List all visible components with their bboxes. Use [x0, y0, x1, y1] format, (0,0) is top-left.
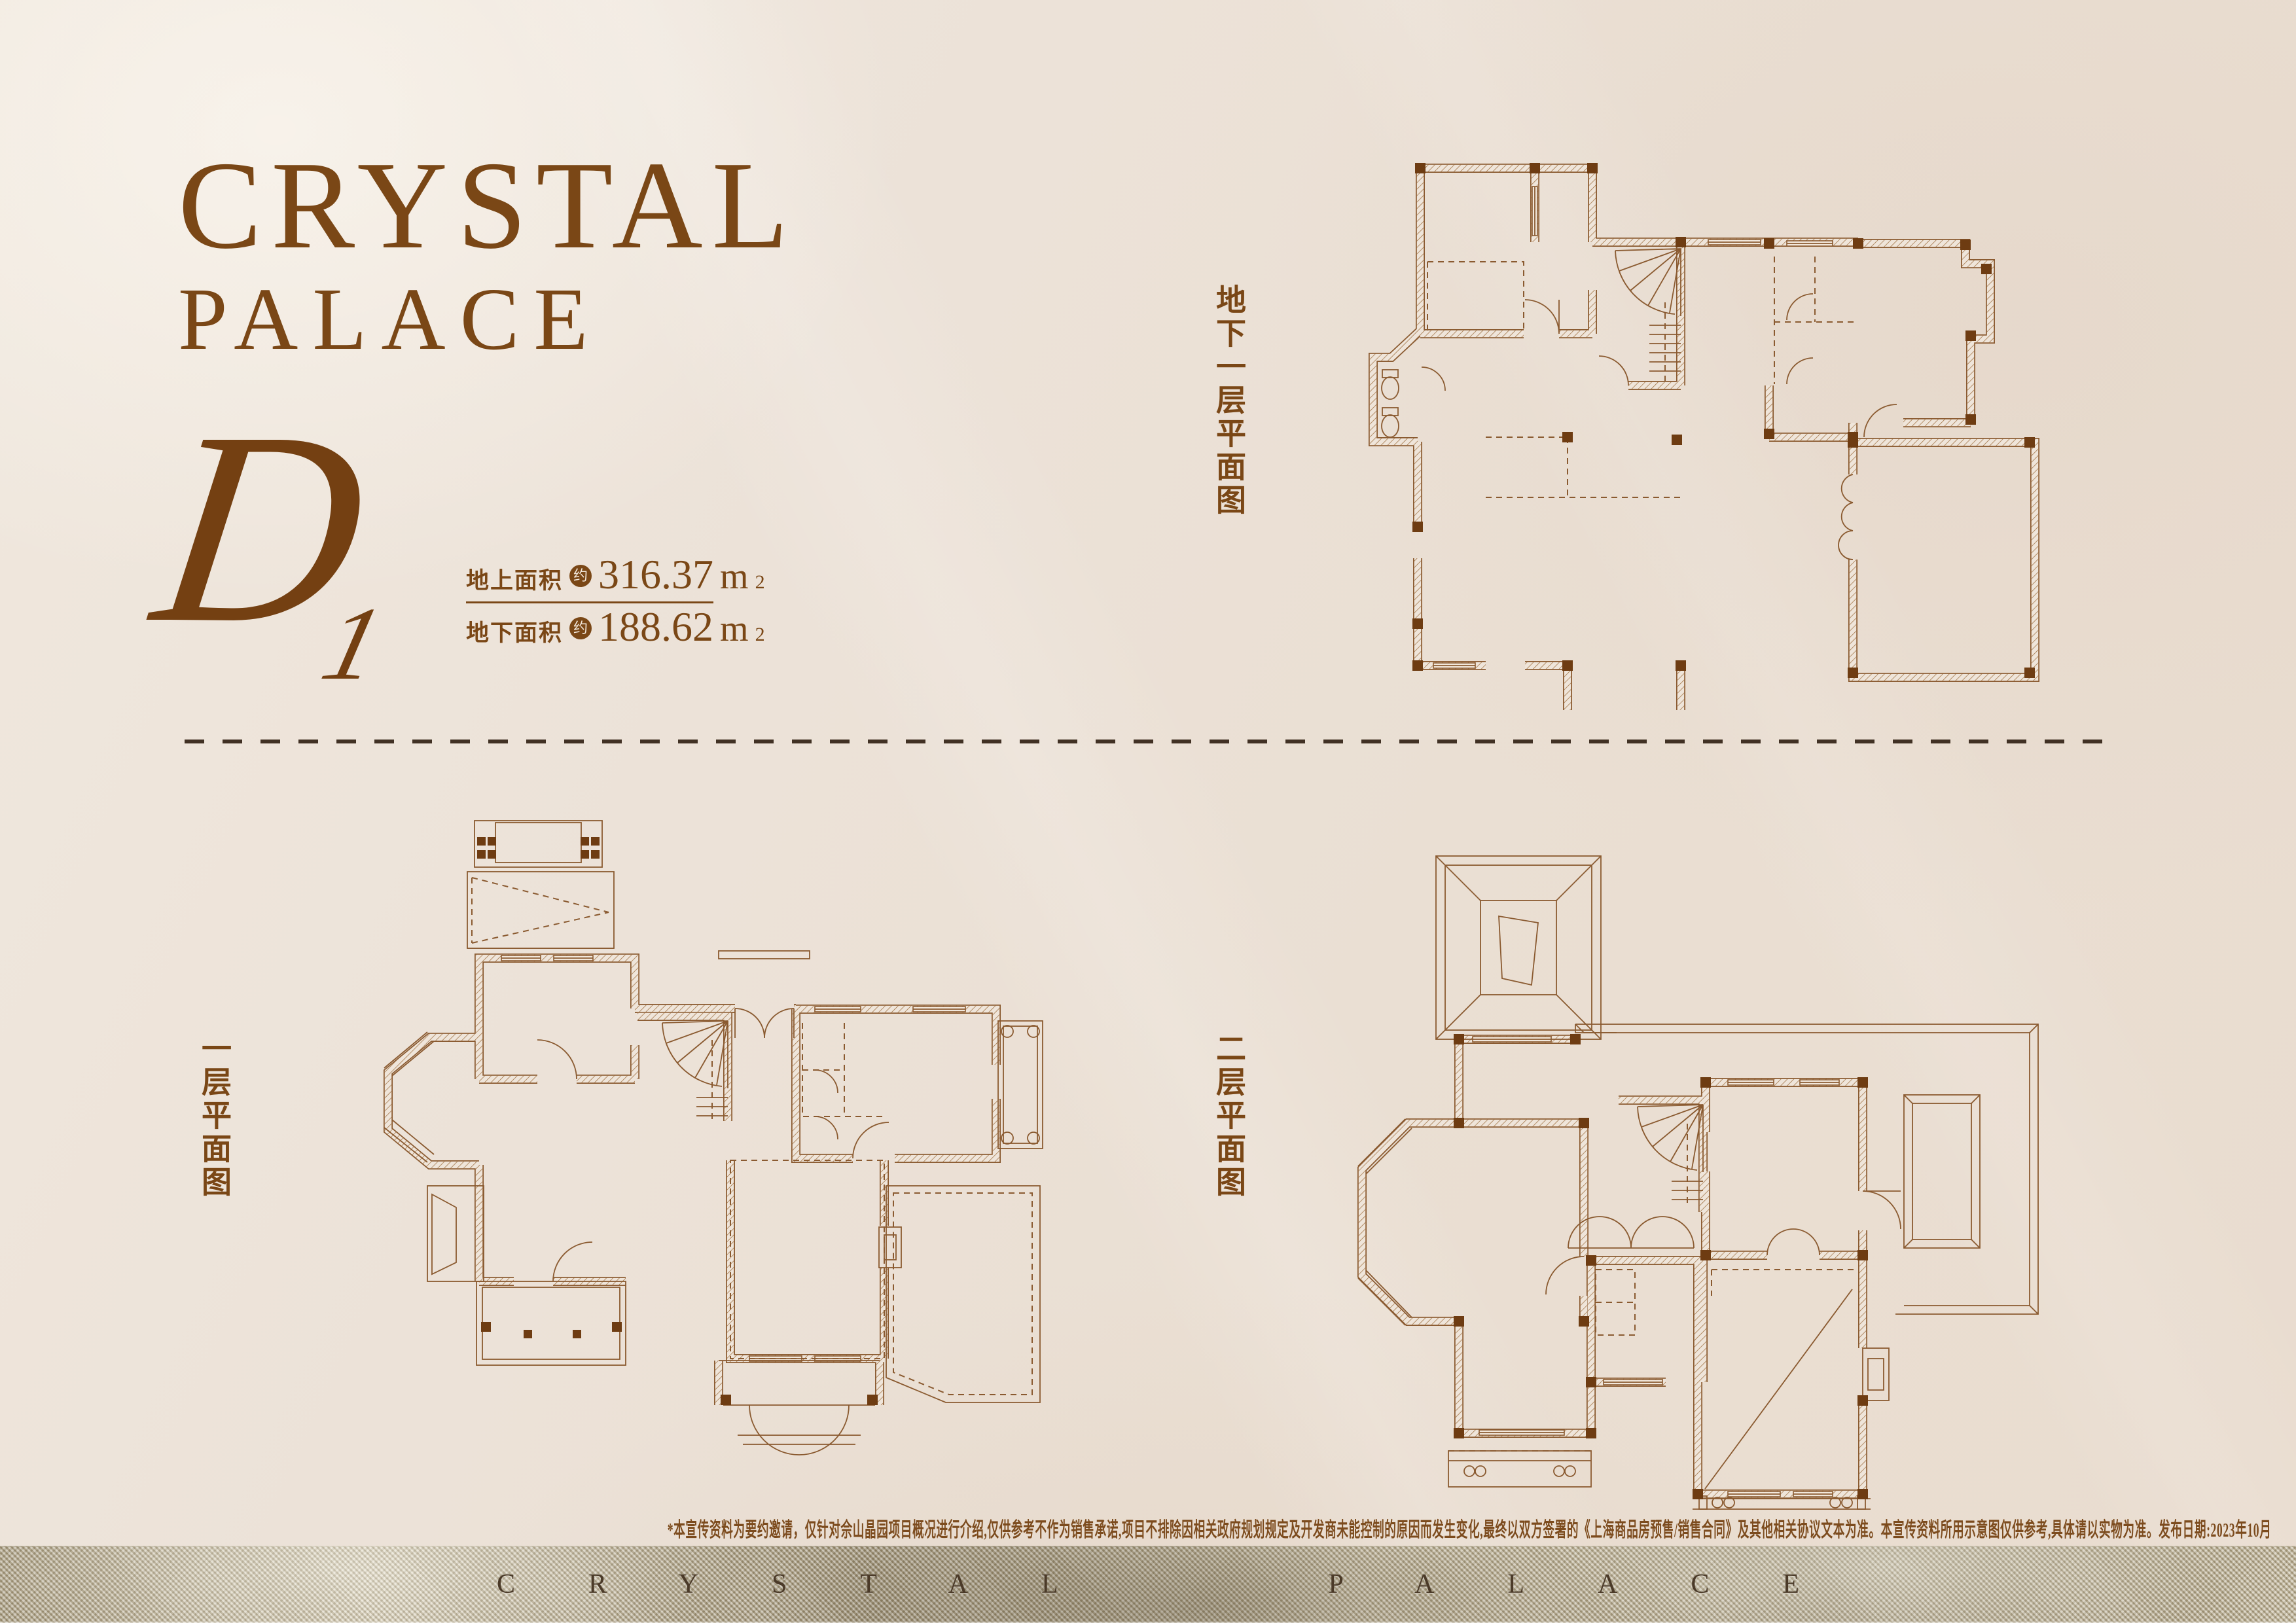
dashed-section-divider [185, 740, 2115, 743]
page-title: CRYSTAL [178, 143, 798, 268]
area-value: 316.37 [598, 554, 713, 596]
brochure-page: CRYSTAL PALACE D1 地上面积 约 316.37m2 地下面积 约… [0, 0, 2296, 1623]
label-basement-plan: 地下一层平面图 [1213, 284, 1244, 518]
first-floor-plan-drawing [357, 815, 1083, 1508]
label-second-floor-plan: 二层平面图 [1213, 1033, 1244, 1200]
approx-badge-icon: 约 [569, 617, 592, 639]
label-first-floor-plan: 一层平面图 [199, 1033, 229, 1200]
page-subtitle: PALACE [178, 275, 602, 364]
second-floor-plan-drawing [1335, 838, 2134, 1512]
basement-floor-plan-drawing [1368, 134, 2101, 710]
footer-metallic-bar: CRYSTAL PALACE [0, 1546, 2296, 1623]
area-label: 地上面积 [466, 562, 563, 596]
area-summary: 地上面积 约 316.37m2 地下面积 约 188.62m2 [466, 554, 728, 650]
area-label: 地下面积 [466, 615, 563, 648]
legal-disclaimer: *本宣传资料为要约邀请，仅针对佘山晶园项目概况进行介绍,仅供参考不作为销售承诺,… [667, 1513, 2271, 1543]
approx-badge-icon: 约 [569, 565, 592, 587]
footer-brand-text: CRYSTAL PALACE [0, 1546, 2296, 1623]
area-above-ground: 地上面积 约 316.37m2 [466, 554, 728, 597]
unit-code: D1 [162, 390, 379, 696]
area-below-ground: 地下面积 约 188.62m2 [466, 606, 728, 650]
area-unit: m [720, 556, 749, 597]
area-value: 188.62 [598, 606, 713, 648]
area-unit: m [720, 608, 749, 650]
